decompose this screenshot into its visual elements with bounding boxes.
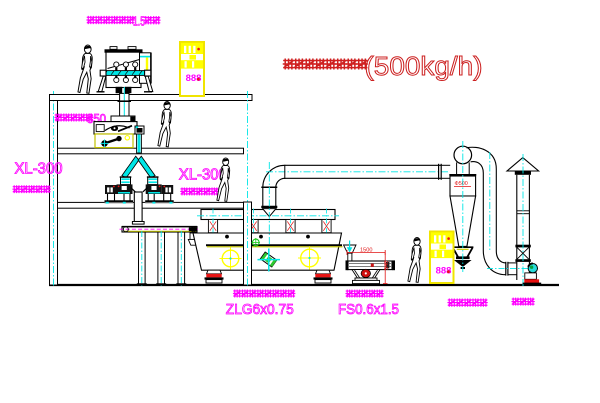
- svg-text:1.5: 1.5: [133, 14, 145, 28]
- svg-text:XL-300: XL-300: [179, 167, 227, 184]
- svg-text:1500: 1500: [360, 247, 372, 253]
- svg-text:FS0.6x1.5: FS0.6x1.5: [338, 301, 399, 318]
- svg-text:XL-300: XL-300: [15, 161, 63, 178]
- svg-text:540: 540: [384, 261, 390, 270]
- svg-text:(500kg/h): (500kg/h): [365, 53, 483, 81]
- svg-text:ZLG6x0.75: ZLG6x0.75: [226, 301, 294, 318]
